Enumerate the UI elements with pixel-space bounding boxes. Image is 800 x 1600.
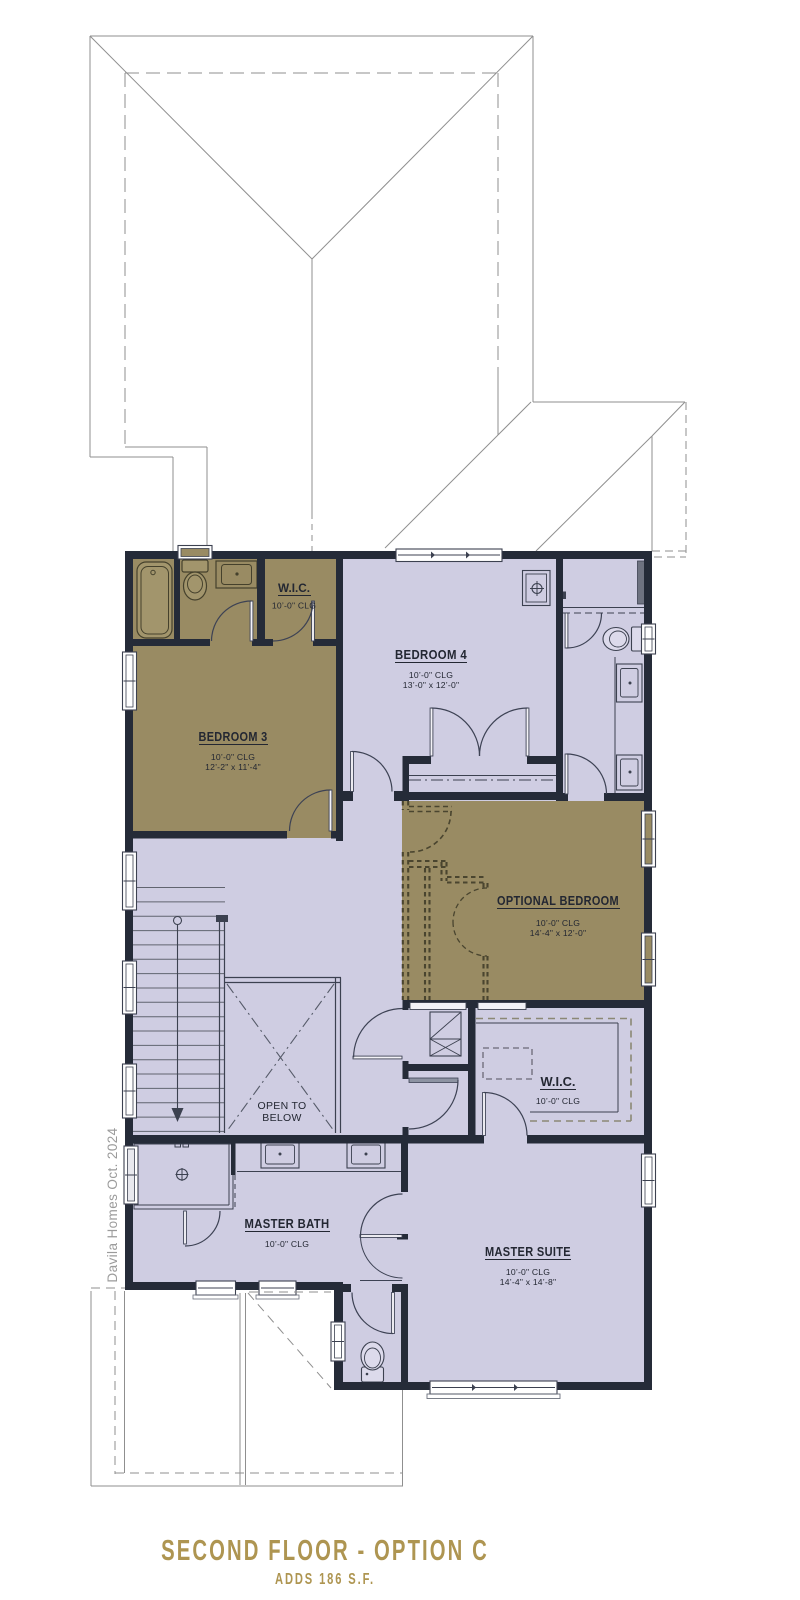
svg-text:BEDROOM 3: BEDROOM 3: [199, 729, 268, 744]
svg-text:10’-0" CLG: 10’-0" CLG: [536, 918, 580, 928]
svg-text:10’-0" CLG: 10’-0" CLG: [536, 1096, 580, 1106]
svg-text:10’-0" CLG: 10’-0" CLG: [265, 1239, 309, 1249]
svg-text:12’-2" x 11’-4": 12’-2" x 11’-4": [205, 762, 261, 772]
svg-text:10’-0" CLG: 10’-0" CLG: [272, 601, 316, 611]
svg-text:W.I.C.: W.I.C.: [278, 583, 310, 595]
svg-text:MASTER SUITE: MASTER SUITE: [485, 1244, 571, 1259]
svg-text:MASTER BATH: MASTER BATH: [245, 1216, 330, 1231]
svg-text:14’-4" x 14’-8": 14’-4" x 14’-8": [500, 1277, 556, 1287]
svg-text:13’-0" x 12’-0": 13’-0" x 12’-0": [403, 680, 459, 690]
svg-text:14’-4" x 12’-0": 14’-4" x 12’-0": [530, 928, 586, 938]
svg-text:OPEN TO: OPEN TO: [258, 1100, 307, 1112]
svg-text:Davila Homes Oct. 2024: Davila Homes Oct. 2024: [105, 1127, 120, 1282]
svg-text:10’-0" CLG: 10’-0" CLG: [506, 1267, 550, 1277]
svg-text:BELOW: BELOW: [262, 1112, 301, 1124]
svg-text:SECOND FLOOR - OPTION C: SECOND FLOOR - OPTION C: [161, 1535, 489, 1567]
svg-text:W.I.C.: W.I.C.: [541, 1075, 576, 1089]
svg-text:OPTIONAL BEDROOM: OPTIONAL BEDROOM: [497, 893, 619, 908]
svg-text:BEDROOM 4: BEDROOM 4: [395, 647, 467, 662]
svg-text:10’-0" CLG: 10’-0" CLG: [211, 752, 255, 762]
svg-text:10’-0" CLG: 10’-0" CLG: [409, 670, 453, 680]
svg-text:ADDS 186 S.F.: ADDS 186 S.F.: [275, 1570, 375, 1587]
